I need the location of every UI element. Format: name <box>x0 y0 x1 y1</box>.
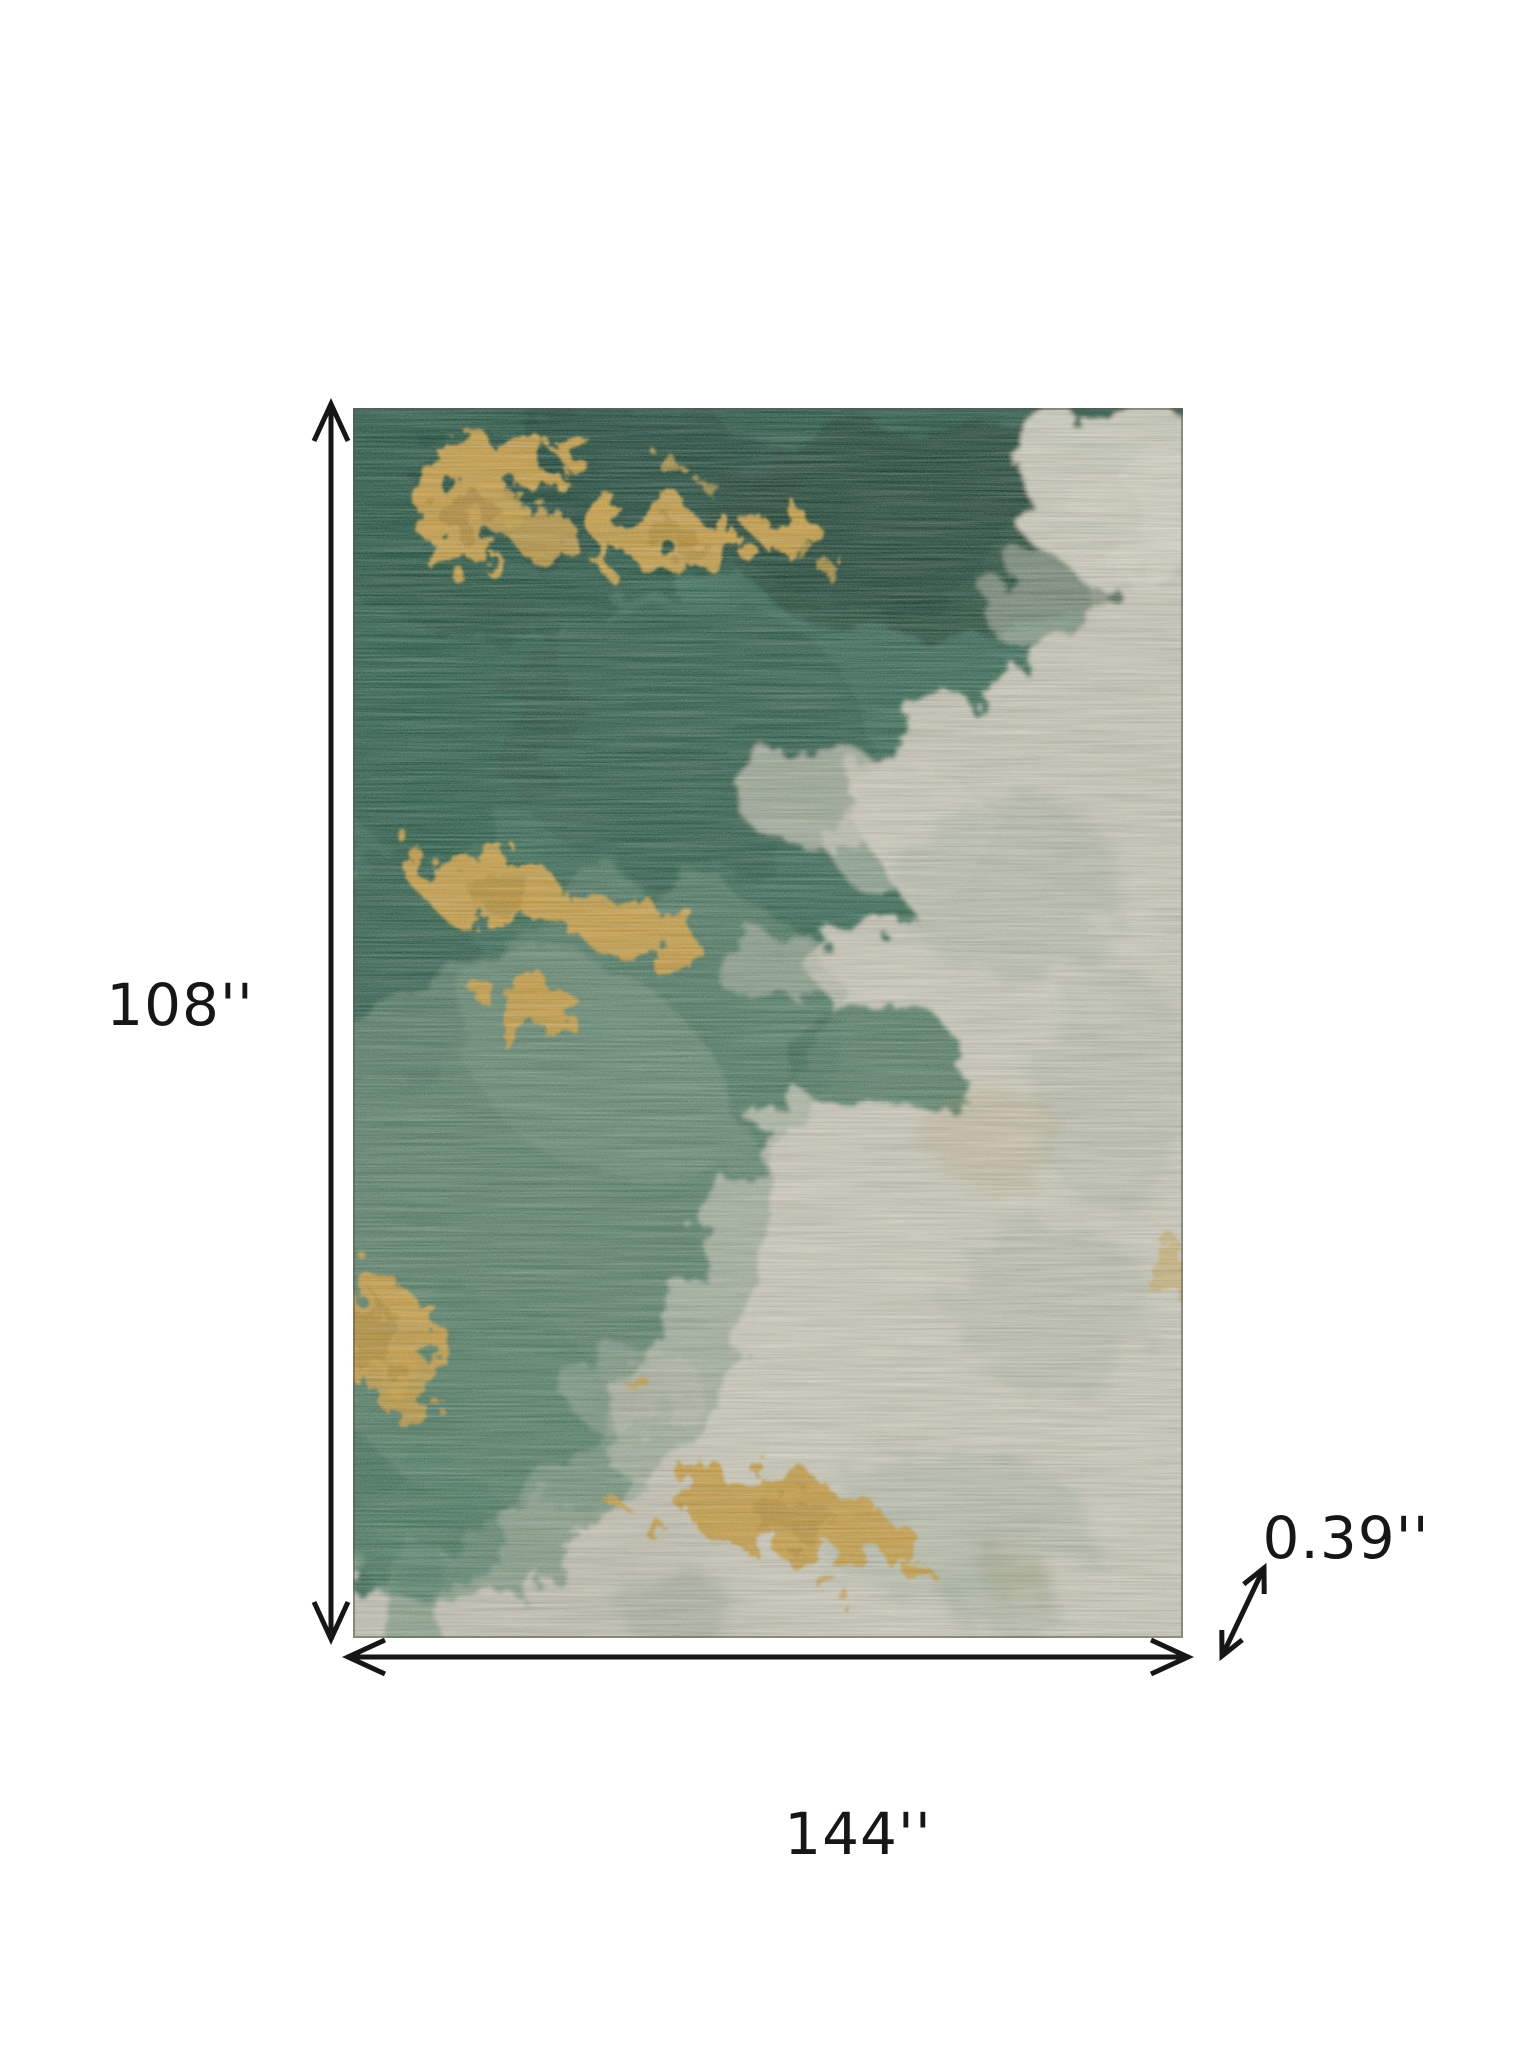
height-dimension-label: 108'' <box>62 976 298 1034</box>
rug-image <box>353 408 1183 1638</box>
rug-art <box>353 408 1183 1638</box>
height-arrow <box>314 404 348 1639</box>
product-dimension-diagram: 108'' 144'' 0.39'' <box>0 0 1536 2048</box>
thickness-arrow <box>1222 1568 1264 1656</box>
thickness-dimension-label: 0.39'' <box>1228 1509 1464 1567</box>
width-dimension-label: 144'' <box>740 1805 976 1863</box>
width-arrow <box>348 1640 1188 1674</box>
rug-texture <box>353 408 1183 1638</box>
